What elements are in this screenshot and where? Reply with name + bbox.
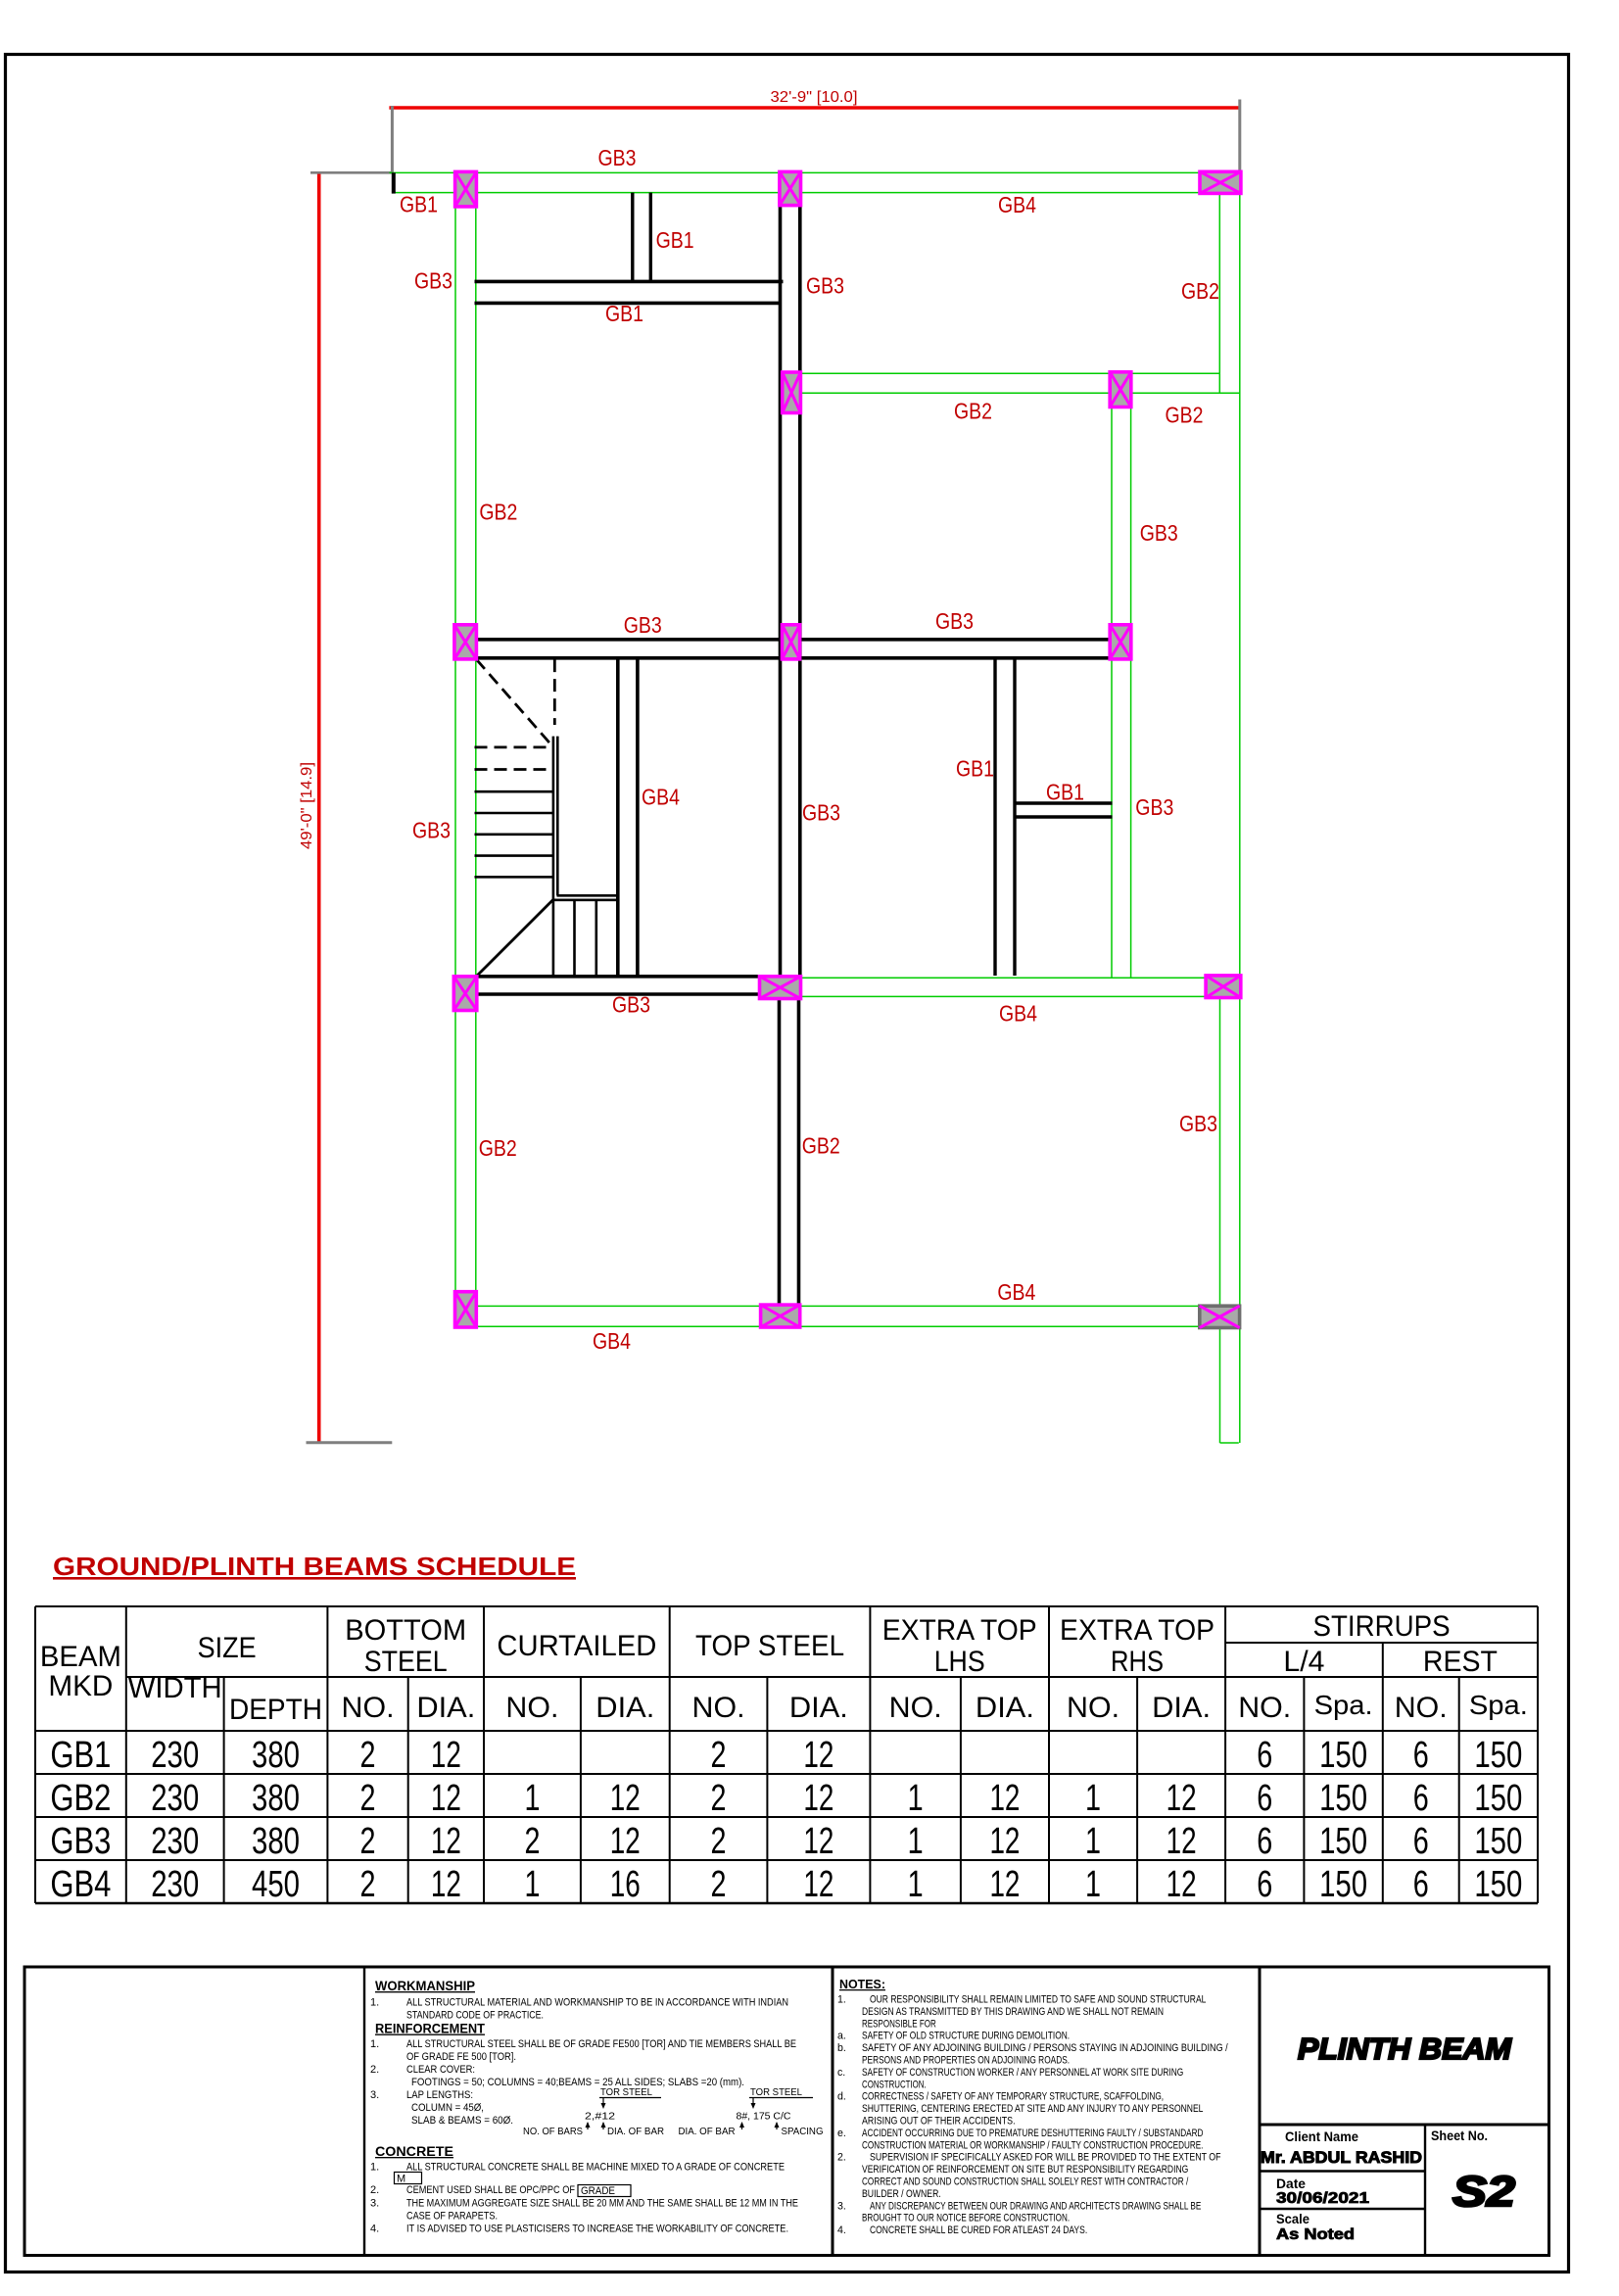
svg-text:WORKMANSHIP: WORKMANSHIP xyxy=(375,1979,475,1993)
svg-text:GB3: GB3 xyxy=(598,145,637,170)
svg-text:EXTRA TOP: EXTRA TOP xyxy=(882,1614,1037,1647)
svg-text:6: 6 xyxy=(1413,1778,1429,1819)
svg-text:6: 6 xyxy=(1257,1735,1272,1776)
svg-text:NO.: NO. xyxy=(1395,1692,1448,1724)
svg-text:GB1: GB1 xyxy=(50,1735,111,1776)
svg-text:DIA.: DIA. xyxy=(976,1692,1034,1724)
svg-text:CONCRETE: CONCRETE xyxy=(375,2144,453,2159)
svg-text:d.: d. xyxy=(837,2091,846,2103)
svg-text:380: 380 xyxy=(252,1778,300,1819)
svg-text:CORRECTNESS / SAFETY OF ANY TE: CORRECTNESS / SAFETY OF ANY TEMPORARY ST… xyxy=(862,2091,1164,2103)
svg-text:STEEL: STEEL xyxy=(364,1646,448,1678)
svg-text:CASE OF PARAPETS.: CASE OF PARAPETS. xyxy=(406,2211,498,2223)
svg-text:CONSTRUCTION.: CONSTRUCTION. xyxy=(862,2079,927,2090)
svg-text:PLINTH BEAM: PLINTH BEAM xyxy=(1298,2032,1512,2066)
svg-text:DIA.: DIA. xyxy=(416,1692,475,1724)
svg-text:150: 150 xyxy=(1474,1778,1522,1819)
svg-text:150: 150 xyxy=(1474,1864,1522,1905)
svg-text:VERIFICATION OF REINFORCEMENT: VERIFICATION OF REINFORCEMENT ON SITE BU… xyxy=(862,2164,1188,2176)
svg-text:230: 230 xyxy=(151,1864,199,1905)
svg-text:12: 12 xyxy=(803,1821,833,1862)
svg-text:REST: REST xyxy=(1423,1646,1498,1678)
svg-text:BROUGHT TO OUR NOTICE BEFORE C: BROUGHT TO OUR NOTICE BEFORE CONSTRUCTIO… xyxy=(862,2213,1070,2224)
svg-text:FOOTINGS = 50; COLUMNS = 40;BE: FOOTINGS = 50; COLUMNS = 40;BEAMS = 25 A… xyxy=(411,2077,744,2088)
svg-text:NOTES:: NOTES: xyxy=(839,1978,885,1991)
svg-text:NO.: NO. xyxy=(692,1692,745,1724)
svg-text:GRADE: GRADE xyxy=(581,2185,615,2197)
svg-text:6: 6 xyxy=(1257,1778,1272,1819)
svg-text:3.: 3. xyxy=(370,2089,379,2101)
svg-text:12: 12 xyxy=(803,1778,833,1819)
svg-text:1.: 1. xyxy=(370,2038,379,2050)
svg-text:3.: 3. xyxy=(370,2198,379,2210)
svg-text:150: 150 xyxy=(1474,1735,1522,1776)
svg-text:12: 12 xyxy=(431,1864,461,1905)
svg-text:2: 2 xyxy=(360,1778,376,1819)
svg-text:380: 380 xyxy=(252,1735,300,1776)
svg-text:L/4: L/4 xyxy=(1283,1646,1324,1678)
svg-text:1: 1 xyxy=(908,1821,924,1862)
svg-text:12: 12 xyxy=(1167,1778,1197,1819)
svg-text:GB2: GB2 xyxy=(50,1778,111,1819)
svg-text:GB3: GB3 xyxy=(935,608,974,634)
svg-text:PERSONS AND PROPERTIES ON ADJO: PERSONS AND PROPERTIES ON ADJOINING ROAD… xyxy=(862,2055,1070,2067)
svg-text:GB3: GB3 xyxy=(50,1821,111,1862)
svg-text:450: 450 xyxy=(252,1864,300,1905)
svg-text:6: 6 xyxy=(1413,1821,1429,1862)
svg-text:Client Name: Client Name xyxy=(1285,2129,1358,2144)
svg-text:2.: 2. xyxy=(837,2152,846,2164)
svg-text:ALL STRUCTURAL MATERIAL AND WO: ALL STRUCTURAL MATERIAL AND WORKMANSHIP … xyxy=(406,1997,788,2009)
svg-text:OF GRADE FE 500 [TOR].: OF GRADE FE 500 [TOR]. xyxy=(406,2051,516,2063)
svg-text:As Noted: As Noted xyxy=(1276,2226,1355,2243)
svg-text:MKD: MKD xyxy=(48,1670,113,1702)
svg-text:2.: 2. xyxy=(370,2184,379,2196)
svg-text:DIA.: DIA. xyxy=(789,1692,848,1724)
svg-text:CLEAR COVER:: CLEAR COVER: xyxy=(406,2064,475,2076)
svg-text:c.: c. xyxy=(837,2067,845,2079)
svg-text:1.: 1. xyxy=(837,1994,846,2006)
svg-text:4.: 4. xyxy=(370,2224,379,2235)
svg-text:COLUMN = 45Ø,: COLUMN = 45Ø, xyxy=(411,2102,484,2114)
svg-text:GB3: GB3 xyxy=(414,267,452,293)
svg-text:GB2: GB2 xyxy=(802,1132,840,1158)
svg-text:2: 2 xyxy=(711,1735,727,1776)
svg-text:2,#12: 2,#12 xyxy=(585,2111,615,2123)
svg-text:THE MAXIMUM AGGREGATE SIZE SHA: THE MAXIMUM AGGREGATE SIZE SHALL BE 20 M… xyxy=(406,2198,798,2210)
svg-text:150: 150 xyxy=(1319,1735,1367,1776)
svg-text:150: 150 xyxy=(1319,1821,1367,1862)
svg-text:RHS: RHS xyxy=(1111,1646,1164,1678)
svg-text:STIRRUPS: STIRRUPS xyxy=(1313,1610,1451,1643)
svg-text:STANDARD CODE OF PRACTICE.: STANDARD CODE OF PRACTICE. xyxy=(406,2010,544,2022)
svg-text:GB3: GB3 xyxy=(624,612,662,638)
svg-text:1: 1 xyxy=(524,1864,540,1905)
svg-text:GB2: GB2 xyxy=(954,399,992,424)
svg-text:12: 12 xyxy=(803,1864,833,1905)
svg-text:6: 6 xyxy=(1257,1821,1272,1862)
svg-text:1.: 1. xyxy=(370,2162,379,2174)
svg-text:S2: S2 xyxy=(1452,2168,1516,2216)
svg-text:6: 6 xyxy=(1257,1864,1272,1905)
svg-text:NO.: NO. xyxy=(1067,1692,1119,1724)
svg-text:12: 12 xyxy=(610,1821,641,1862)
svg-text:NO.: NO. xyxy=(505,1692,558,1724)
svg-text:GB4: GB4 xyxy=(642,785,680,810)
svg-text:GB4: GB4 xyxy=(50,1864,111,1905)
svg-text:DIA.: DIA. xyxy=(1152,1692,1211,1724)
svg-text:12: 12 xyxy=(1167,1864,1197,1905)
svg-text:ARISING OUT OF THEIR ACCIDENTS: ARISING OUT OF THEIR ACCIDENTS. xyxy=(862,2116,1016,2128)
svg-text:2.: 2. xyxy=(370,2064,379,2076)
svg-text:1.: 1. xyxy=(370,1997,379,2009)
svg-text:CORRECT AND SOUND CONSTRUCTION: CORRECT AND SOUND CONSTRUCTION SHALL SOL… xyxy=(862,2176,1188,2188)
svg-text:RESPONSIBLE FOR: RESPONSIBLE FOR xyxy=(862,2018,936,2030)
svg-text:230: 230 xyxy=(151,1778,199,1819)
svg-text:GB1: GB1 xyxy=(956,756,994,782)
svg-text:GB1: GB1 xyxy=(656,227,694,253)
svg-text:GB1: GB1 xyxy=(605,301,643,326)
svg-text:SIZE: SIZE xyxy=(198,1632,257,1664)
svg-text:DIA. OF BAR: DIA. OF BAR xyxy=(679,2126,736,2137)
svg-text:GB2: GB2 xyxy=(1166,403,1204,428)
svg-text:ALL STRUCTURAL CONCRETE SHALL: ALL STRUCTURAL CONCRETE SHALL BE MACHINE… xyxy=(406,2162,785,2174)
svg-text:NO.: NO. xyxy=(889,1692,942,1724)
svg-text:12: 12 xyxy=(803,1735,833,1776)
svg-text:12: 12 xyxy=(431,1735,461,1776)
svg-text:NO.: NO. xyxy=(342,1692,395,1724)
svg-text:CONCRETE SHALL BE CURED FOR AT: CONCRETE SHALL BE CURED FOR ATLEAST 24 D… xyxy=(870,2224,1087,2236)
svg-text:GB4: GB4 xyxy=(999,1001,1037,1027)
svg-text:1: 1 xyxy=(1085,1821,1101,1862)
svg-text:Sheet No.: Sheet No. xyxy=(1431,2129,1488,2143)
svg-text:BEAM: BEAM xyxy=(40,1641,121,1673)
svg-text:TOP STEEL: TOP STEEL xyxy=(695,1630,844,1662)
svg-text:Mr. ABDUL RASHID: Mr. ABDUL RASHID xyxy=(1261,2148,1422,2167)
svg-text:2: 2 xyxy=(711,1778,727,1819)
svg-text:ACCIDENT OCCURRING DUE TO PREM: ACCIDENT OCCURRING DUE TO PREMATURE DESH… xyxy=(862,2128,1204,2139)
svg-text:230: 230 xyxy=(151,1735,199,1776)
svg-text:1: 1 xyxy=(908,1864,924,1905)
svg-text:2: 2 xyxy=(360,1735,376,1776)
svg-text:LHS: LHS xyxy=(934,1646,985,1678)
svg-text:DIA. OF BAR: DIA. OF BAR xyxy=(607,2126,664,2137)
svg-text:3.: 3. xyxy=(837,2200,846,2212)
svg-text:b.: b. xyxy=(837,2042,846,2054)
svg-text:1: 1 xyxy=(524,1778,540,1819)
svg-text:Date: Date xyxy=(1276,2176,1306,2191)
svg-text:CEMENT USED SHALL BE OPC/PPC O: CEMENT USED SHALL BE OPC/PPC OF xyxy=(406,2184,575,2196)
svg-text:CURTAILED: CURTAILED xyxy=(497,1630,656,1662)
svg-text:DESIGN AS TRANSMITTED BY THIS: DESIGN AS TRANSMITTED BY THIS DRAWING AN… xyxy=(862,2006,1164,2018)
svg-text:12: 12 xyxy=(431,1821,461,1862)
svg-text:8#, 175 C/C: 8#, 175 C/C xyxy=(737,2111,791,2123)
svg-text:1: 1 xyxy=(908,1778,924,1819)
svg-text:a.: a. xyxy=(837,2031,846,2042)
svg-text:16: 16 xyxy=(610,1864,641,1905)
svg-text:GB4: GB4 xyxy=(997,1279,1035,1305)
svg-text:SAFETY OF ANY ADJOINING BUILDI: SAFETY OF ANY ADJOINING BUILDING / PERSO… xyxy=(862,2042,1228,2054)
svg-text:230: 230 xyxy=(151,1821,199,1862)
svg-text:30/06/2021: 30/06/2021 xyxy=(1276,2190,1369,2207)
svg-text:LAP LENGTHS:: LAP LENGTHS: xyxy=(406,2089,473,2101)
svg-text:1: 1 xyxy=(1085,1864,1101,1905)
svg-text:2: 2 xyxy=(360,1864,376,1905)
svg-text:150: 150 xyxy=(1319,1864,1367,1905)
svg-text:GB4: GB4 xyxy=(998,192,1036,217)
svg-text:Spa.: Spa. xyxy=(1314,1690,1373,1720)
svg-text:SPACING: SPACING xyxy=(782,2126,824,2137)
svg-text:M: M xyxy=(397,2174,405,2185)
svg-text:BUILDER / OWNER.: BUILDER / OWNER. xyxy=(862,2188,941,2200)
svg-text:380: 380 xyxy=(252,1821,300,1862)
svg-text:6: 6 xyxy=(1413,1735,1429,1776)
svg-text:32'-9" [10.0]: 32'-9" [10.0] xyxy=(771,89,858,106)
svg-text:WIDTH: WIDTH xyxy=(128,1672,222,1704)
svg-text:SAFETY OF OLD STRUCTURE DURING: SAFETY OF OLD STRUCTURE DURING DEMOLITIO… xyxy=(862,2031,1070,2042)
svg-text:GROUND/PLINTH BEAMS SCHEDULE: GROUND/PLINTH BEAMS SCHEDULE xyxy=(53,1552,576,1581)
svg-text:TOR STEEL: TOR STEEL xyxy=(750,2086,802,2098)
svg-text:GB3: GB3 xyxy=(612,992,650,1018)
svg-text:GB2: GB2 xyxy=(479,499,517,524)
svg-text:GB3: GB3 xyxy=(1135,794,1173,820)
svg-text:GB3: GB3 xyxy=(1140,520,1178,546)
svg-text:GB3: GB3 xyxy=(1179,1111,1217,1136)
svg-text:12: 12 xyxy=(989,1821,1020,1862)
svg-text:6: 6 xyxy=(1413,1864,1429,1905)
svg-text:SHUTTERING, CENTERING ERECTED: SHUTTERING, CENTERING ERECTED AT SITE AN… xyxy=(862,2103,1204,2115)
svg-text:NO.: NO. xyxy=(1238,1692,1291,1724)
svg-text:REINFORCEMENT: REINFORCEMENT xyxy=(375,2022,486,2036)
svg-text:GB1: GB1 xyxy=(400,192,438,217)
svg-text:GB4: GB4 xyxy=(593,1328,631,1354)
svg-text:GB2: GB2 xyxy=(1181,278,1219,304)
svg-text:SLAB & BEAMS = 60Ø.: SLAB & BEAMS = 60Ø. xyxy=(411,2115,513,2127)
svg-text:ALL STRUCTURAL STEEL SHALL BE: ALL STRUCTURAL STEEL SHALL BE OF GRADE F… xyxy=(406,2038,796,2050)
svg-text:DEPTH: DEPTH xyxy=(229,1694,322,1726)
svg-text:150: 150 xyxy=(1474,1821,1522,1862)
svg-text:ANY DISCREPANCY BETWEEN OUR DR: ANY DISCREPANCY BETWEEN OUR DRAWING AND … xyxy=(870,2200,1201,2212)
svg-text:12: 12 xyxy=(989,1864,1020,1905)
svg-text:12: 12 xyxy=(431,1778,461,1819)
svg-text:2: 2 xyxy=(360,1821,376,1862)
svg-text:CONSTRUCTION MATERIAL OR WORKM: CONSTRUCTION MATERIAL OR WORKMANSHIP / F… xyxy=(862,2139,1203,2151)
svg-text:12: 12 xyxy=(1167,1821,1197,1862)
svg-text:NO. OF BARS: NO. OF BARS xyxy=(523,2126,583,2137)
svg-text:BOTTOM: BOTTOM xyxy=(345,1614,466,1647)
svg-text:GB2: GB2 xyxy=(479,1135,517,1161)
svg-text:SAFETY OF CONSTRUCTION WORKER: SAFETY OF CONSTRUCTION WORKER / ANY PERS… xyxy=(862,2067,1183,2079)
svg-text:DIA.: DIA. xyxy=(595,1692,654,1724)
svg-text:GB3: GB3 xyxy=(806,273,844,299)
svg-text:GB1: GB1 xyxy=(1046,780,1084,805)
svg-text:12: 12 xyxy=(989,1778,1020,1819)
svg-text:Scale: Scale xyxy=(1276,2212,1309,2226)
svg-text:OUR RESPONSIBILITY SHALL REMAI: OUR RESPONSIBILITY SHALL REMAIN LIMITED … xyxy=(870,1994,1206,2006)
svg-text:GB3: GB3 xyxy=(802,800,840,826)
svg-text:4.: 4. xyxy=(837,2224,846,2236)
svg-text:IT IS ADVISED TO USE PLASTICIS: IT IS ADVISED TO USE PLASTICISERS TO INC… xyxy=(406,2224,788,2235)
svg-text:e.: e. xyxy=(837,2128,846,2139)
svg-text:1: 1 xyxy=(1085,1778,1101,1819)
svg-text:SUPERVISION IF SPECIFICALLY AS: SUPERVISION IF SPECIFICALLY ASKED FOR WI… xyxy=(870,2152,1221,2164)
svg-text:12: 12 xyxy=(610,1778,641,1819)
svg-text:49'-0" [14.9]: 49'-0" [14.9] xyxy=(299,762,315,849)
svg-text:EXTRA TOP: EXTRA TOP xyxy=(1060,1614,1214,1647)
svg-text:TOR STEEL: TOR STEEL xyxy=(600,2086,652,2098)
svg-text:Spa.: Spa. xyxy=(1469,1690,1528,1720)
svg-text:2: 2 xyxy=(711,1821,727,1862)
svg-text:150: 150 xyxy=(1319,1778,1367,1819)
svg-text:GB3: GB3 xyxy=(412,818,451,843)
svg-text:2: 2 xyxy=(524,1821,540,1862)
svg-text:2: 2 xyxy=(711,1864,727,1905)
